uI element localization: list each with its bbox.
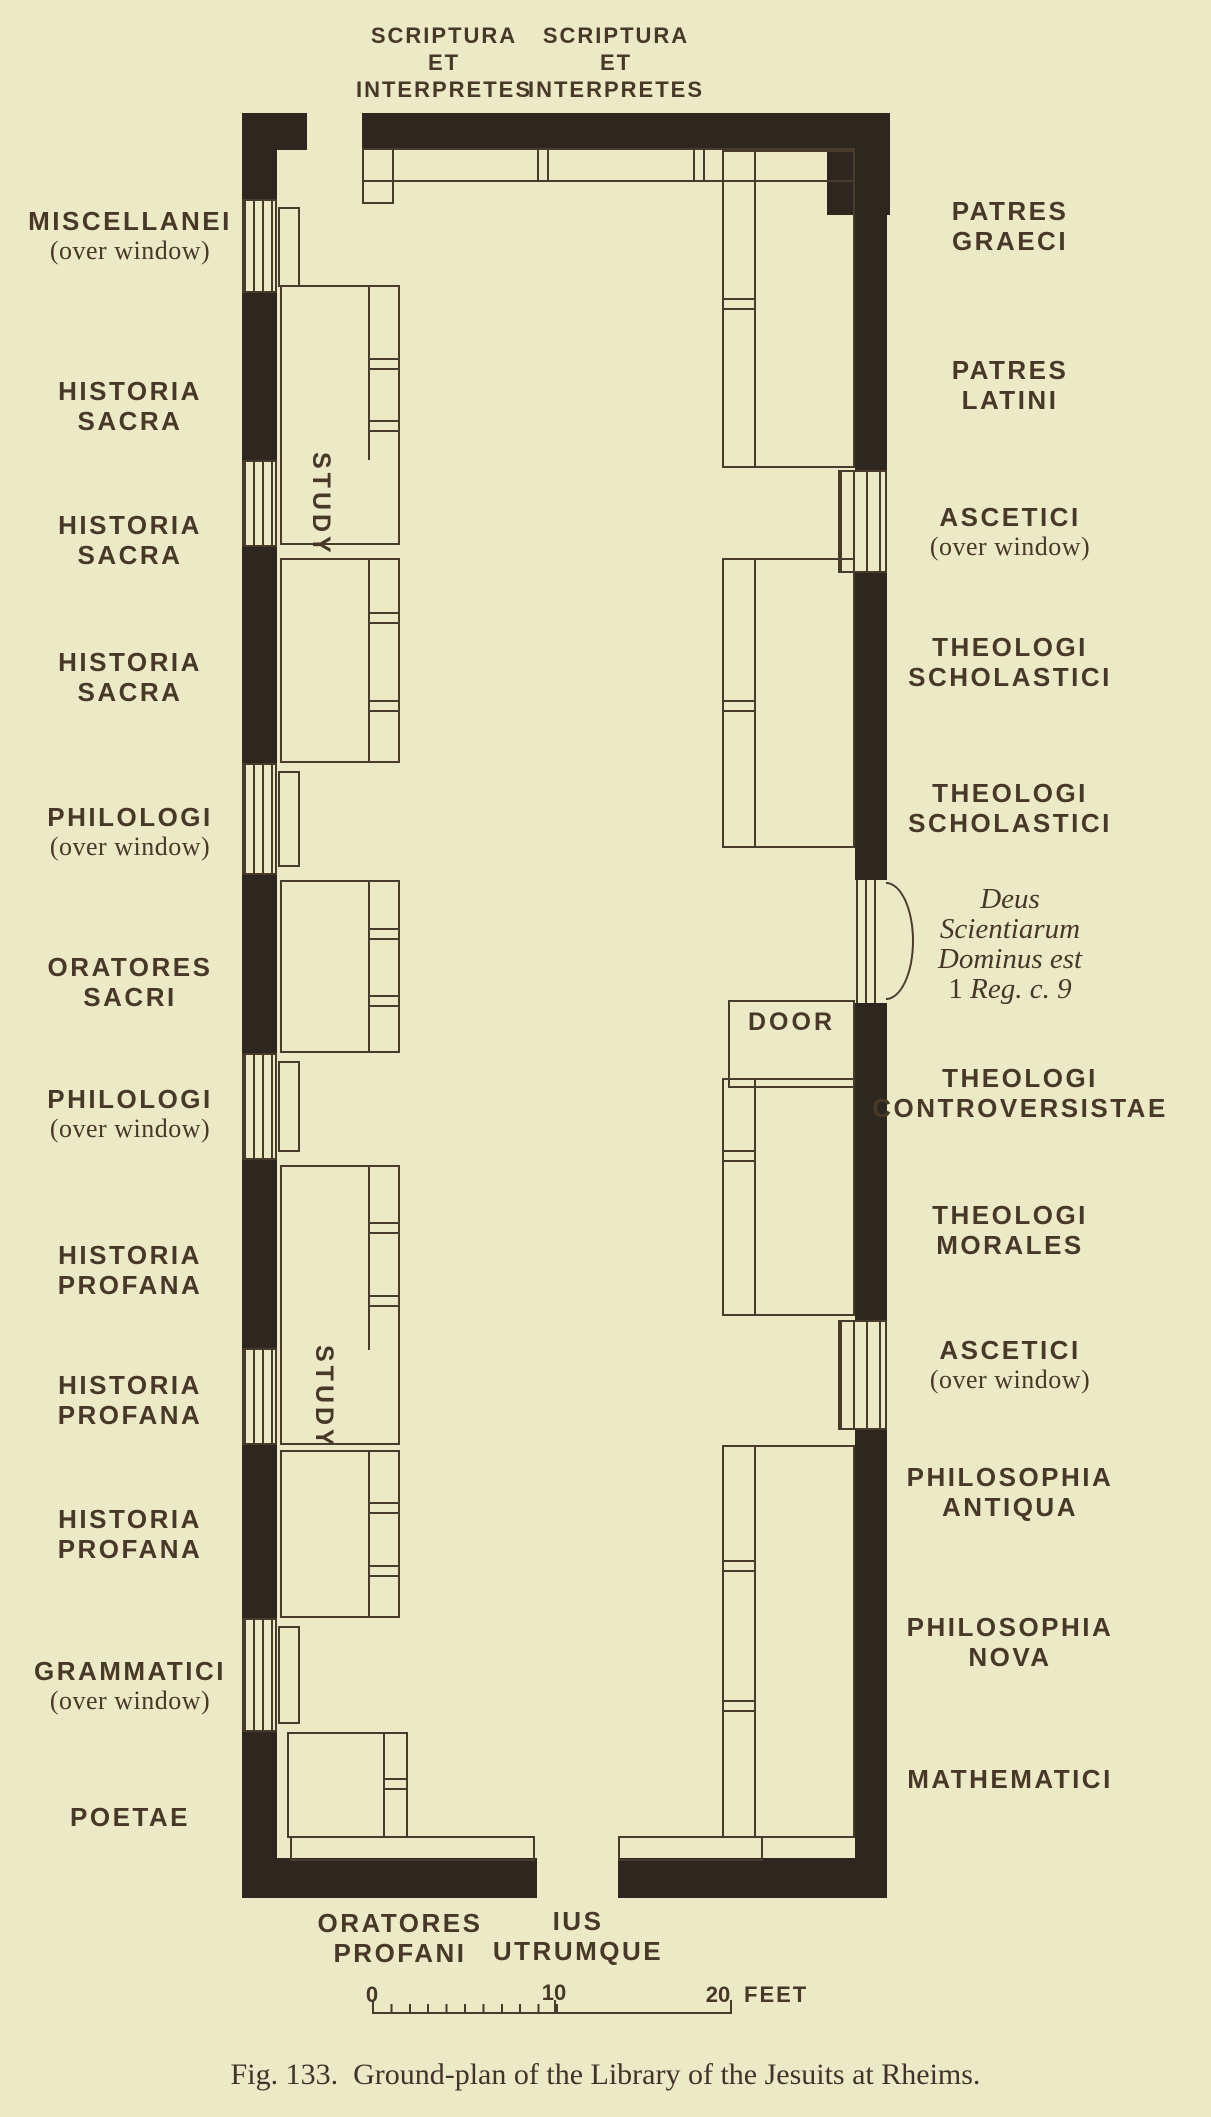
bookcase-inner-line (754, 1080, 756, 1314)
inscription-line: Scientiarum (880, 914, 1140, 944)
scale-baseline (372, 2012, 732, 2014)
shelf-label-line: HISTORIA (58, 1370, 202, 1400)
door-inscription: Deus Scientiarum Dominus est 1 Reg. c. 9 (880, 884, 1140, 1004)
shelf-label-poetae: POETAE (15, 1802, 245, 1832)
wall-corner-top-left (242, 113, 307, 150)
shelf-label-line: SACRA (78, 406, 183, 436)
shelf-divider (724, 1560, 754, 1572)
shelf-label-line: CONTROVERSISTAE (872, 1093, 1168, 1123)
shelf-divider (724, 1700, 754, 1712)
shelf-label-oratores-sacri: ORATORES SACRI (15, 952, 245, 1012)
window-left-philologi1 (242, 763, 277, 875)
shelf-label-line: GRAMMATICI (34, 1656, 226, 1686)
scale-unit-label: FEET (744, 1982, 808, 2008)
shelf-label-line: IUS (553, 1906, 604, 1936)
book-page: SCRIPTURA ET INTERPRETES SCRIPTURA ET IN… (0, 0, 1211, 2117)
shelf-divider (724, 298, 754, 310)
door-leaf-lines (856, 880, 880, 1003)
shelf-label-line: ANTIQUA (942, 1492, 1078, 1522)
bookcase-bottom-right (618, 1836, 763, 1861)
top-label-line: INTERPRETES (528, 77, 704, 102)
wall-corner-top-left-lower (242, 150, 277, 199)
shelf-label-line: POETAE (70, 1802, 190, 1832)
bookcase-oratores-sacri (280, 880, 400, 1053)
shelf-label-line: PHILOLOGI (47, 802, 213, 832)
shelf-label-note: (over window) (860, 532, 1160, 562)
bookcase-divider (703, 150, 705, 180)
shelf-label-theologi-morales: THEOLOGI MORALES (860, 1200, 1160, 1260)
shelf-label-grammatici: GRAMMATICI (over window) (15, 1656, 245, 1716)
shelf-label-theologi-controversistae: THEOLOGI CONTROVERSISTAE (860, 1063, 1180, 1123)
bookcase-divider (693, 150, 695, 180)
shelf-label-line: SACRA (78, 677, 183, 707)
shelf-label-line: HISTORIA (58, 647, 202, 677)
shelf-label-line: ASCETICI (939, 502, 1080, 532)
shelf-label-ascetici-2: ASCETICI (over window) (860, 1335, 1160, 1395)
shelf-label-line: NOVA (968, 1642, 1051, 1672)
wall-left-segment (242, 875, 277, 1053)
shelf-divider (724, 1150, 754, 1162)
shelf-label-theologi-scholastici-2: THEOLOGI SCHOLASTICI (860, 778, 1160, 838)
shelf-label-line: PROFANA (58, 1270, 203, 1300)
bookcase-bottom-left (290, 1836, 535, 1861)
shelf-label-line: UTRUMQUE (493, 1936, 663, 1966)
window-left-grammatici (242, 1618, 277, 1732)
shelf-label-theologi-scholastici-1: THEOLOGI SCHOLASTICI (860, 632, 1160, 692)
shelf-label-line: PHILOLOGI (47, 1084, 213, 1114)
shelf-label-line: LATINI (962, 385, 1059, 415)
top-label-line: SCRIPTURA (371, 23, 517, 48)
wall-bottom-right (618, 1858, 887, 1898)
study-label-1: STUDY (306, 452, 335, 557)
wall-bottom-left (242, 1858, 537, 1898)
figure-caption: Fig. 133. Ground-plan of the Library of … (0, 2058, 1211, 2092)
shelf-label-line: MISCELLANEI (28, 206, 232, 236)
shelf-label-line: MORALES (936, 1230, 1084, 1260)
wall-right-segment (855, 1003, 887, 1320)
shelf-label-philosophia-nova: PHILOSOPHIA NOVA (860, 1612, 1160, 1672)
shelf-label-line: HISTORIA (58, 376, 202, 406)
bookcase-theologi-controversistae (722, 1078, 855, 1316)
shelf-divider (385, 1778, 406, 1790)
shelf-divider (370, 995, 398, 1007)
shelf-label-oratores-profani: ORATORES PROFANI (300, 1908, 500, 1968)
bookcase-inner-line (368, 882, 370, 1051)
shelf-divider (370, 1222, 398, 1234)
shelf-label-line: ORATORES (48, 952, 213, 982)
bookcase-top-strip-endcap (362, 148, 394, 204)
shelf-divider (370, 1565, 398, 1577)
shelf-label-line: THEOLOGI (942, 1063, 1098, 1093)
shelf-divider (370, 928, 398, 940)
shelf-label-line: PROFANI (333, 1938, 466, 1968)
top-label-line: ET (428, 50, 460, 75)
shelf-label-line: THEOLOGI (932, 1200, 1088, 1230)
shelf-label-patres-graeci: PATRES GRAECI (860, 196, 1160, 256)
bookcase-inner-line (368, 287, 370, 460)
study-enclosure-1 (280, 285, 400, 545)
bookcase-inner-line (368, 1452, 370, 1616)
wall-left-segment (242, 1445, 277, 1618)
bookcase-inner-line (368, 1167, 370, 1350)
bookcase-inner-line (368, 560, 370, 761)
shelf-label-line: SCHOLASTICI (908, 808, 1112, 838)
shelf-divider (370, 1502, 398, 1514)
bookcase-over-window (278, 207, 300, 287)
shelf-label-line: PHILOSOPHIA (907, 1612, 1114, 1642)
shelf-label-line: HISTORIA (58, 1240, 202, 1270)
shelf-divider (370, 700, 398, 712)
shelf-label-line: THEOLOGI (932, 632, 1088, 662)
shelf-label-philologi-2: PHILOLOGI (over window) (15, 1084, 245, 1144)
shelf-label-mathematici: MATHEMATICI (860, 1764, 1160, 1794)
shelf-label-historia-profana-3: HISTORIA PROFANA (15, 1504, 245, 1564)
bookcase-divider (547, 150, 549, 180)
shelf-label-line: PROFANA (58, 1534, 203, 1564)
shelf-divider (370, 358, 398, 370)
shelf-label-note: (over window) (15, 1686, 245, 1716)
shelf-label-historia-sacra-1: HISTORIA SACRA (15, 376, 245, 436)
wall-left-segment (242, 547, 277, 763)
shelf-label-historia-profana-2: HISTORIA PROFANA (15, 1370, 245, 1430)
bookcase-inner-line (754, 560, 756, 846)
shelf-label-historia-sacra-2: HISTORIA SACRA (15, 510, 245, 570)
shelf-label-line: PROFANA (58, 1400, 203, 1430)
shelf-label-philologi-1: PHILOLOGI (over window) (15, 802, 245, 862)
shelf-label-historia-sacra-3: HISTORIA SACRA (15, 647, 245, 707)
shelf-divider (370, 1295, 398, 1307)
shelf-label-ius-utrumque: IUS UTRUMQUE (478, 1906, 678, 1966)
bookcase-over-window (278, 771, 300, 867)
window-left-study1 (242, 460, 277, 547)
wall-left-segment (242, 1160, 277, 1348)
scale-tick-label-20: 20 (698, 1982, 738, 2008)
bookcase-over-window (278, 1061, 300, 1152)
bookcase-over-window (278, 1626, 300, 1724)
shelf-divider (724, 700, 754, 712)
bookcase-historia-profana (280, 1450, 400, 1618)
shelf-label-patres-latini: PATRES LATINI (860, 355, 1160, 415)
window-left-study2 (242, 1348, 277, 1445)
bookcase-historia-sacra (280, 558, 400, 763)
inscription-ref-number: 1 (948, 973, 963, 1005)
top-label-scriptura-right: SCRIPTURA ET INTERPRETES (506, 22, 726, 103)
shelf-label-note: (over window) (15, 236, 245, 266)
door-label: DOOR (730, 1008, 853, 1037)
shelf-label-line: MATHEMATICI (907, 1764, 1113, 1794)
bookcase-inner-line (754, 1447, 756, 1836)
shelf-label-note: (over window) (15, 1114, 245, 1144)
shelf-label-line: SCHOLASTICI (908, 662, 1112, 692)
window-left-philologi2 (242, 1053, 277, 1160)
shelf-label-historia-profana-1: HISTORIA PROFANA (15, 1240, 245, 1300)
shelf-label-note: (over window) (15, 832, 245, 862)
shelf-label-line: PHILOSOPHIA (907, 1462, 1114, 1492)
shelf-label-line: PATRES (952, 355, 1069, 385)
inscription-ref: Reg. c. 9 (963, 973, 1072, 1005)
shelf-divider (370, 420, 398, 432)
shelf-label-line: SACRI (83, 982, 176, 1012)
inscription-line: 1 Reg. c. 9 (880, 974, 1140, 1004)
shelf-divider (370, 612, 398, 624)
shelf-label-ascetici-1: ASCETICI (over window) (860, 502, 1160, 562)
shelf-label-miscellanei: MISCELLANEI (over window) (15, 206, 245, 266)
inscription-line: Deus (880, 884, 1140, 914)
inscription-line: Dominus est (880, 944, 1140, 974)
shelf-label-line: SACRA (78, 540, 183, 570)
bookcase-divider (537, 150, 539, 180)
shelf-label-line: PATRES (952, 196, 1069, 226)
wall-top (362, 113, 887, 150)
bookcase-philosophia (722, 1445, 855, 1838)
top-label-line: ET (600, 50, 632, 75)
shelf-label-note: (over window) (860, 1365, 1160, 1395)
wall-left-segment (242, 293, 277, 460)
shelf-label-line: ASCETICI (939, 1335, 1080, 1365)
shelf-label-line: HISTORIA (58, 510, 202, 540)
top-label-line: SCRIPTURA (543, 23, 689, 48)
shelf-label-line: HISTORIA (58, 1504, 202, 1534)
shelf-label-line: THEOLOGI (932, 778, 1088, 808)
window-left-miscellanei (242, 199, 277, 293)
study-label-2: STUDY (309, 1345, 338, 1450)
shelf-label-line: GRAECI (952, 226, 1068, 256)
shelf-label-line: ORATORES (318, 1908, 483, 1938)
bookcase-inner-line (754, 152, 756, 466)
shelf-label-philosophia-antiqua: PHILOSOPHIA ANTIQUA (860, 1462, 1160, 1522)
